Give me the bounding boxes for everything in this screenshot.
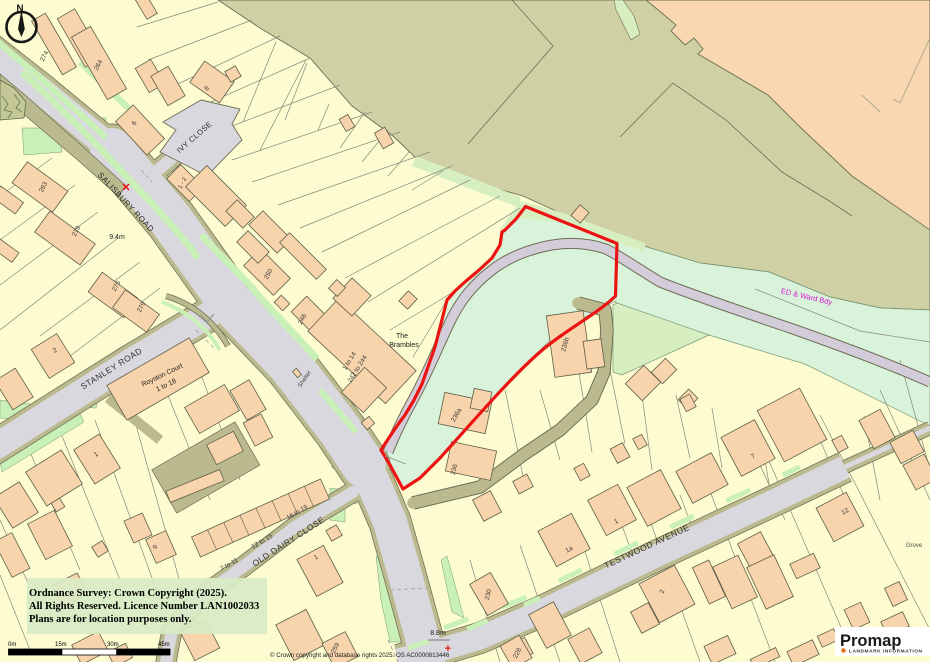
svg-text:45m: 45m	[158, 642, 170, 648]
svg-text:© Crown copyright and database: © Crown copyright and database rights 20…	[270, 652, 450, 659]
svg-text:Brambles: Brambles	[389, 342, 419, 349]
svg-text:15m: 15m	[55, 642, 67, 648]
svg-text:Plans are for location purpose: Plans are for location purposes only.	[29, 614, 192, 625]
svg-text:Promap: Promap	[840, 632, 901, 650]
svg-text:0m: 0m	[8, 642, 16, 648]
svg-text:9.4m: 9.4m	[109, 234, 125, 241]
svg-text:Ordnance Survey: Crown Copyrig: Ordnance Survey: Crown Copyright (2025).	[29, 588, 227, 599]
svg-text:The: The	[396, 333, 408, 340]
svg-text:LANDMARK INFORMATION: LANDMARK INFORMATION	[849, 649, 923, 655]
svg-text:Grove: Grove	[906, 543, 923, 549]
svg-text:All Rights Reserved. Licence N: All Rights Reserved. Licence Number LAN1…	[29, 601, 259, 612]
svg-text:30m: 30m	[107, 642, 119, 648]
svg-text:N: N	[16, 4, 23, 15]
svg-text:8.8m: 8.8m	[430, 630, 446, 637]
